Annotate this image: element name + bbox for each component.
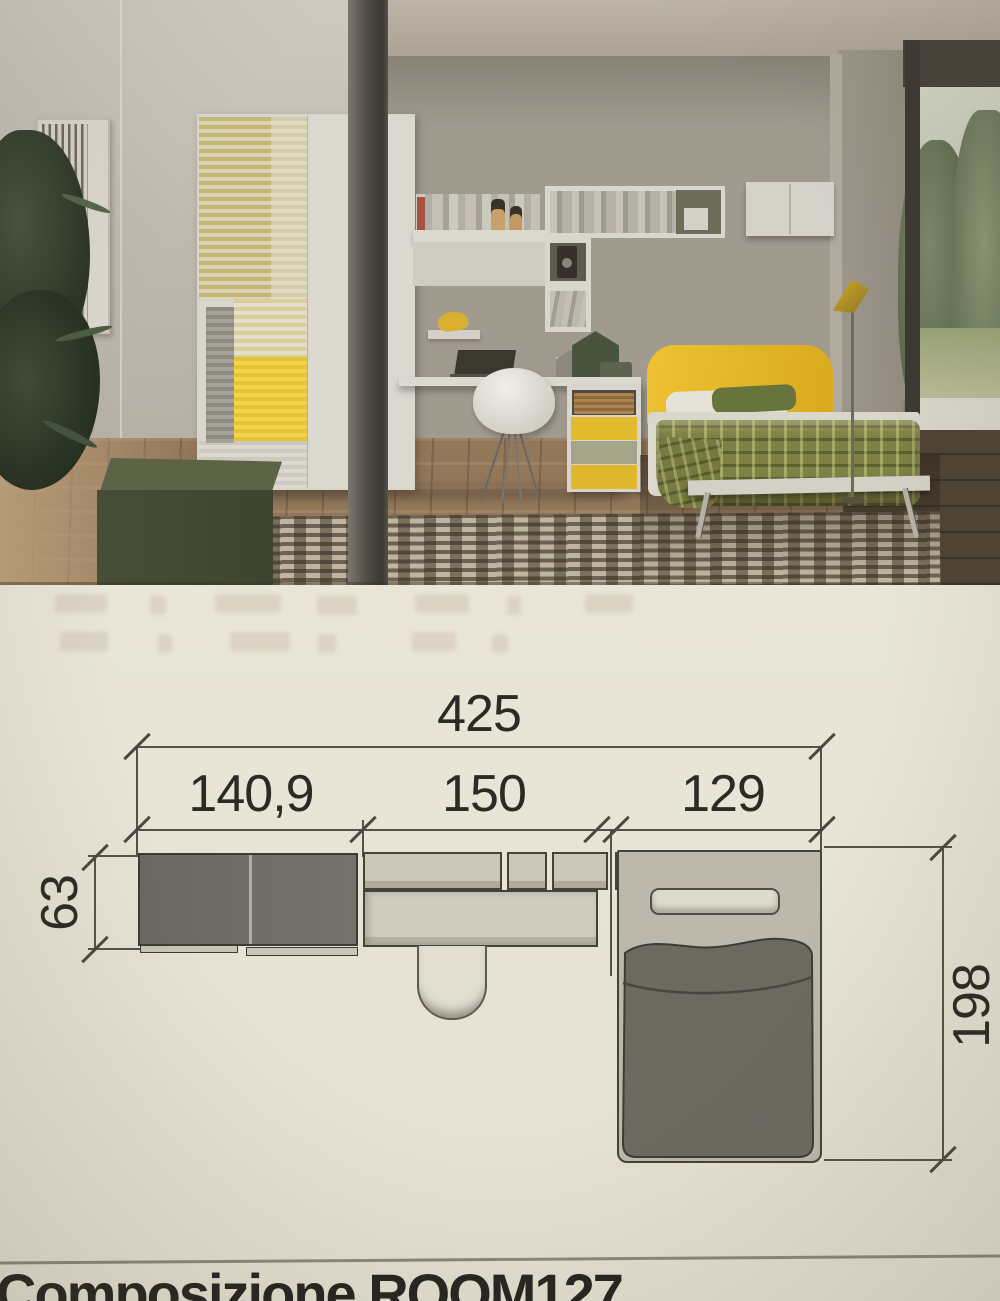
ext-line-desk-end [610,830,612,976]
dim-label-desk-width: 150 [442,768,526,820]
plan-wardrobe-slider-left [140,945,238,953]
dim-label-bed-width: 129 [681,768,765,820]
plan-wardrobe [138,853,358,946]
composition-title: Composizione ROOM127 [0,1266,622,1301]
dim-label-wardrobe-width: 140,9 [188,768,313,820]
dim-line-depth [94,857,96,951]
plan-wall-unit [507,852,547,890]
dim-label-depth: 63 [34,875,86,931]
dim-label-bed-length: 198 [946,964,998,1048]
dim-line-segments [137,829,823,831]
ext-line-left [136,747,138,857]
plan-wardrobe-divider [249,855,252,944]
dim-line-bed-length [942,847,944,1161]
plan-wardrobe-slider-right [246,947,358,956]
dim-label-total-width: 425 [437,688,521,740]
plan-bed-pillow [650,888,780,915]
floor-plan: 425 140,9 150 129 63 198 [0,0,1000,1301]
dim-line-total [137,746,823,748]
plan-wall-unit [552,852,608,890]
ext-line-bed-top [824,846,952,848]
catalog-page: 425 140,9 150 129 63 198 [0,0,1000,1301]
ext-line-right [820,747,822,851]
plan-desk [363,890,598,947]
ext-line-bed-bottom [824,1159,952,1161]
plan-chair [417,946,487,1020]
plan-bed-duvet [615,925,825,1167]
plan-wall-unit [363,852,502,890]
